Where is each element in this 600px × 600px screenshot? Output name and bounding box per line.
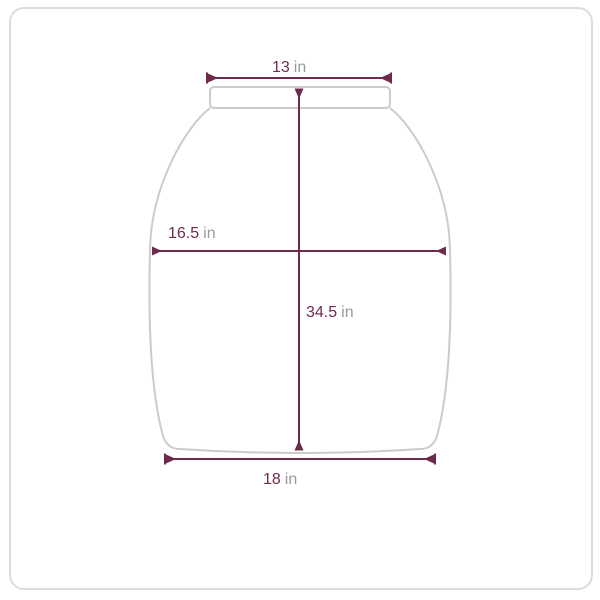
garment-diagram: 13in 16.5in 34.5in 18in [0, 0, 600, 600]
dimension-label: 13in [272, 59, 306, 76]
dimension-label: 16.5in [168, 225, 216, 242]
card-border [10, 8, 592, 589]
dimension-label: 18in [263, 471, 297, 488]
dimension-label: 34.5in [306, 304, 354, 321]
measurement-card: 13in 16.5in 34.5in 18in [0, 0, 600, 600]
